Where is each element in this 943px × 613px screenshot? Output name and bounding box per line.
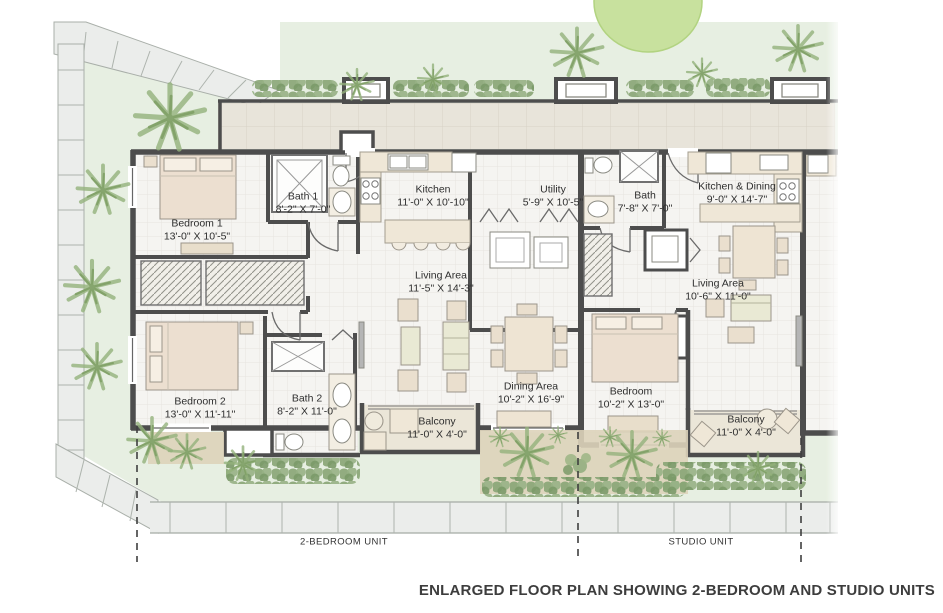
room-name: Kitchen [415, 184, 450, 196]
room-dims: 11'-0" X 4'-0" [407, 429, 467, 442]
room-label-bath-studio: Bath 7'-8" X 7'-0" [618, 190, 673, 217]
wardrobe [141, 261, 201, 305]
room-dims: 10'-2" X 13'-0" [598, 399, 664, 412]
edge-fade-solid [840, 0, 943, 613]
room-label-bedroom-studio: Bedroom 10'-2" X 13'-0" [598, 386, 664, 413]
wardrobe [206, 261, 304, 305]
room-name: Bedroom 2 [174, 396, 225, 408]
room-label-balcony-studio: Balcony 11'-0" X 4'-0" [716, 414, 776, 441]
room-dims: 5'-9" X 10'-5" [523, 197, 584, 210]
room-name: Living Area [415, 270, 467, 282]
room-name: Bedroom [610, 386, 653, 398]
room-dims: 11'-5" X 14'-3" [408, 283, 474, 296]
room-dims: 8'-2" X 7'-0" [276, 204, 331, 217]
room-name: Dining Area [504, 381, 558, 393]
floor-plan-page: Bedroom 1 13'-0" X 10'-5" Bath 1 8'-2" X… [0, 0, 943, 613]
utility-appliances [490, 232, 568, 268]
room-label-bedroom2: Bedroom 2 13'-0" X 11'-11" [165, 396, 236, 423]
room-name: Balcony [727, 414, 764, 426]
unit-label-studio: STUDIO UNIT [668, 537, 733, 548]
room-name: Kitchen & Dining [698, 181, 776, 193]
room-dims: 8'-2" X 11'-0" [277, 406, 337, 419]
room-name: Bedroom 1 [171, 218, 222, 230]
corridor-floor [218, 103, 835, 149]
hedge-row [252, 80, 338, 97]
room-label-living-2br: Living Area 11'-5" X 14'-3" [408, 270, 474, 297]
room-label-bath1: Bath 1 8'-2" X 7'-0" [276, 191, 331, 218]
drawing-caption: ENLARGED FLOOR PLAN SHOWING 2-BEDROOM AN… [419, 582, 935, 599]
room-label-balcony-2br: Balcony 11'-0" X 4'-0" [407, 416, 467, 443]
room-dims: 11'-0" X 4'-0" [716, 427, 776, 440]
room-label-kitchen-dining: Kitchen & Dining 9'-0" X 14'-7" [698, 181, 776, 208]
room-name: Living Area [692, 278, 744, 290]
room-name: Bath 2 [292, 393, 322, 405]
room-label-bath2: Bath 2 8'-2" X 11'-0" [277, 393, 337, 420]
room-name: Balcony [418, 416, 455, 428]
room-name: Bath 1 [288, 191, 318, 203]
room-dims: 11'-0" X 10'-10" [397, 197, 468, 210]
room-label-dining: Dining Area 10'-2" X 16'-9" [498, 381, 564, 408]
room-dims: 13'-0" X 10'-5" [164, 231, 230, 244]
room-label-utility: Utility 5'-9" X 10'-5" [523, 184, 584, 211]
room-label-living-studio: Living Area 10'-6" X 11'-0" [685, 278, 751, 305]
room-dims: 7'-8" X 7'-0" [618, 203, 673, 216]
room-dims: 13'-0" X 11'-11" [165, 409, 236, 422]
room-dims: 10'-2" X 16'-9" [498, 394, 564, 407]
room-dims: 9'-0" X 14'-7" [698, 194, 776, 207]
room-label-bedroom1: Bedroom 1 13'-0" X 10'-5" [164, 218, 230, 245]
room-name: Utility [540, 184, 566, 196]
bed-bedroom2 [146, 322, 253, 390]
room-label-kitchen: Kitchen 11'-0" X 10'-10" [397, 184, 468, 211]
room-name: Bath [634, 190, 656, 202]
unit-label-2-bedroom: 2-BEDROOM UNIT [300, 537, 388, 548]
floor-plan-drawing [0, 0, 943, 613]
room-dims: 10'-6" X 11'-0" [685, 291, 751, 304]
